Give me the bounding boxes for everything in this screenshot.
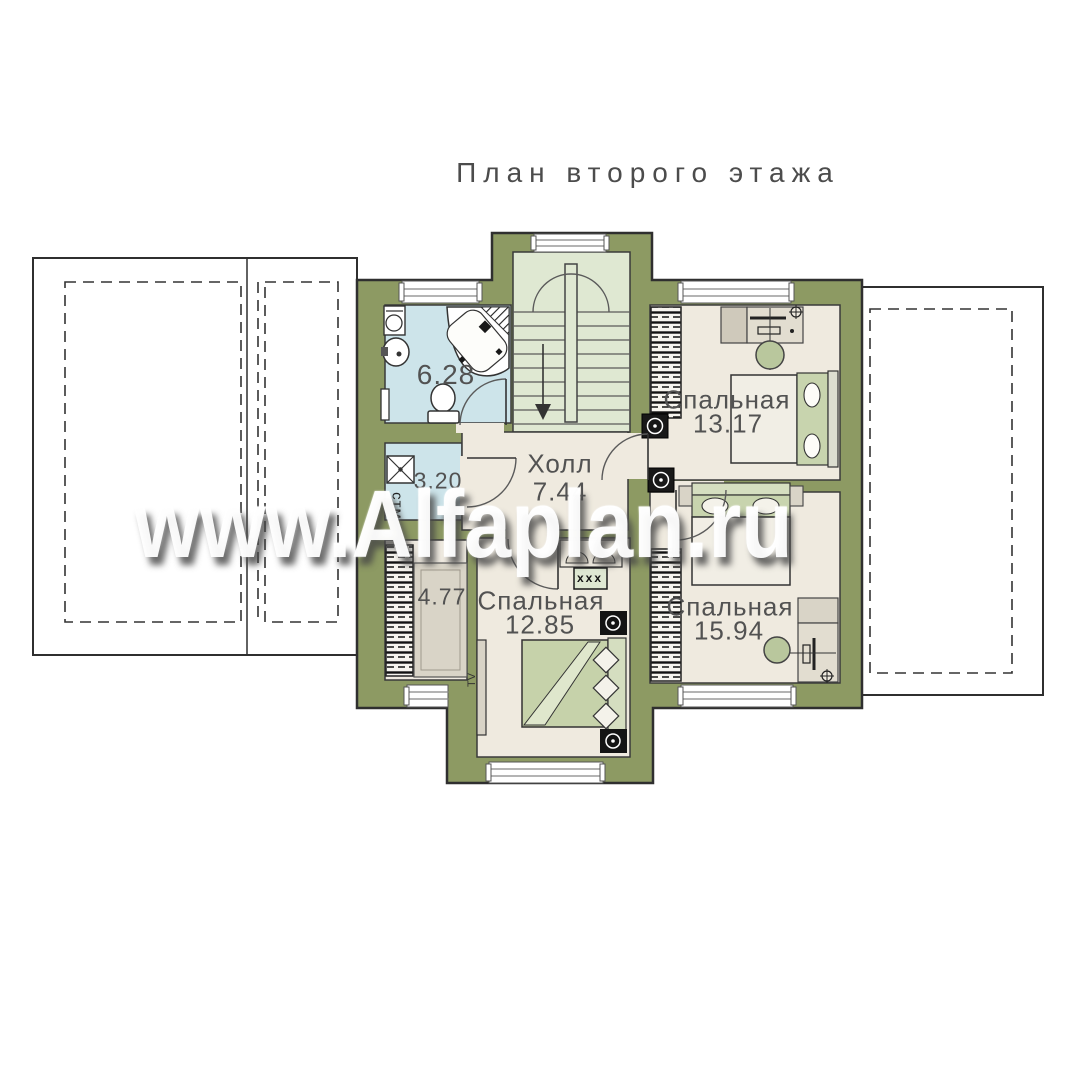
bathroom-area-label: 6.28	[417, 359, 476, 391]
window-dormer-top	[531, 234, 609, 252]
bedroom-tr-area-label: 13.17	[693, 409, 763, 440]
page-title: План второго этажа	[456, 157, 840, 189]
stair-railing	[565, 264, 577, 422]
window-top-right	[678, 281, 794, 303]
bed-icon	[522, 638, 626, 730]
tv-label: TV	[466, 673, 478, 687]
bedroom-bl-area-label: 12.85	[505, 610, 575, 641]
chair-icon	[764, 637, 790, 663]
closet-area-label: 4.77	[418, 584, 467, 611]
closet-shelf	[414, 563, 467, 677]
watermark: www.Alfaplan.ru	[134, 470, 793, 580]
speaker-icon	[600, 729, 627, 753]
window-dormer-bottom	[486, 762, 605, 783]
window-bottom-right	[678, 685, 796, 707]
boiler-icon	[384, 306, 405, 335]
roof-left	[33, 258, 357, 655]
roof-right	[862, 287, 1043, 695]
chair-icon	[756, 341, 784, 369]
window-top-left	[399, 281, 482, 303]
window-bottom-left	[404, 685, 448, 707]
floor-plan-page: План второго этажа 6.28 3.20 стм Холл 7.…	[0, 0, 1080, 1080]
tv-icon	[477, 640, 486, 735]
bedroom-br-area-label: 15.94	[694, 616, 764, 647]
bathroom-door-opening	[456, 423, 504, 433]
towel-radiator-icon	[381, 389, 389, 420]
